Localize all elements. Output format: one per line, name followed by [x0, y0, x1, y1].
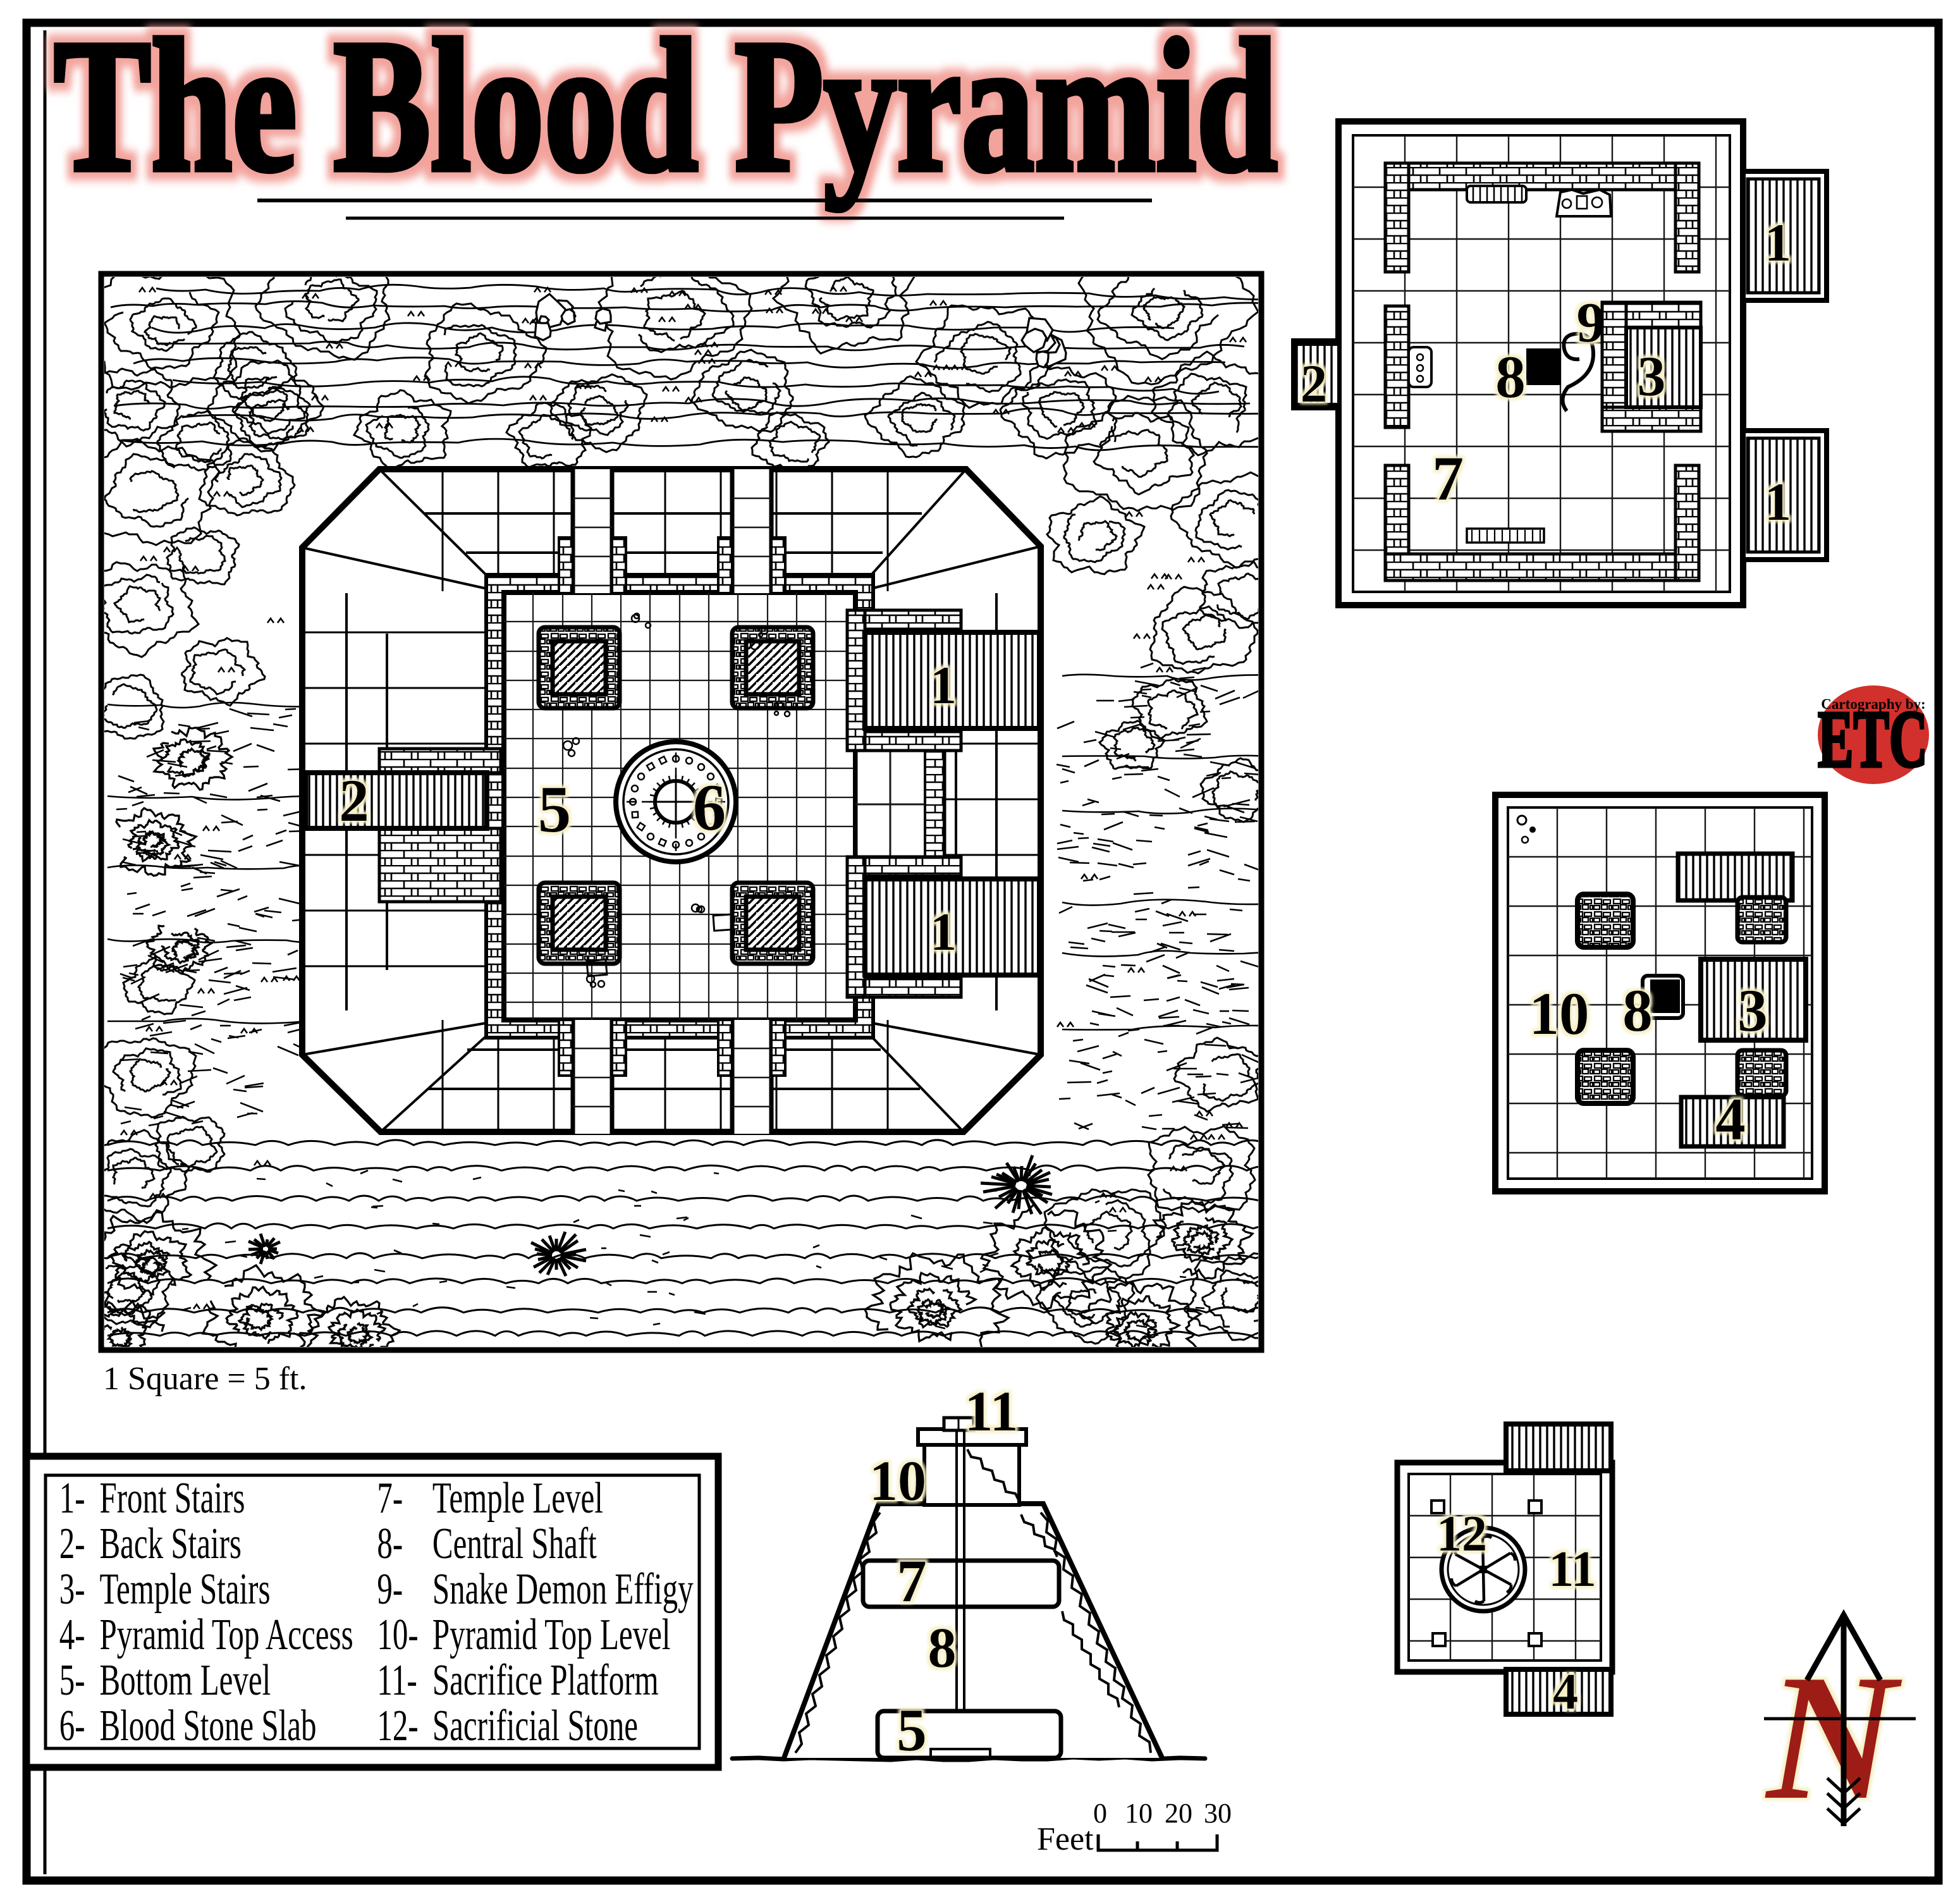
svg-text:1: 1 — [1765, 213, 1792, 273]
svg-text:3-: 3- — [59, 1565, 85, 1614]
svg-text:9-: 9- — [377, 1565, 403, 1614]
svg-text:Bottom Level: Bottom Level — [99, 1656, 271, 1705]
svg-text:Central Shaft: Central Shaft — [432, 1519, 597, 1569]
svg-text:5-: 5- — [59, 1656, 85, 1705]
svg-text:8: 8 — [1495, 343, 1526, 410]
svg-text:7: 7 — [897, 1547, 927, 1614]
svg-text:Temple Stairs: Temple Stairs — [99, 1565, 270, 1614]
svg-text:1: 1 — [1765, 472, 1792, 532]
svg-text:3: 3 — [1638, 345, 1666, 408]
svg-text:5: 5 — [538, 772, 572, 846]
svg-text:N: N — [1764, 1637, 1905, 1837]
svg-text:Back Stairs: Back Stairs — [99, 1519, 242, 1569]
svg-text:ETC: ETC — [1818, 695, 1928, 785]
svg-text:8: 8 — [928, 1617, 957, 1679]
svg-text:1-: 1- — [59, 1474, 85, 1523]
svg-text:Snake Demon Effigy: Snake Demon Effigy — [432, 1565, 694, 1614]
svg-text:0: 0 — [1093, 1798, 1107, 1829]
svg-text:10: 10 — [869, 1450, 926, 1513]
svg-text:Sacrifice Platform: Sacrifice Platform — [432, 1656, 659, 1705]
svg-text:8: 8 — [1622, 977, 1653, 1044]
svg-text:4: 4 — [1715, 1086, 1746, 1153]
svg-text:2-: 2- — [59, 1519, 85, 1569]
svg-text:5: 5 — [897, 1697, 927, 1764]
svg-text:Feet: Feet — [1037, 1821, 1094, 1857]
svg-text:4: 4 — [1553, 1664, 1578, 1720]
svg-text:8-: 8- — [377, 1519, 403, 1569]
svg-text:The Blood Pyramid: The Blood Pyramid — [54, 1, 1277, 211]
svg-text:30: 30 — [1204, 1798, 1232, 1829]
svg-text:7: 7 — [1432, 443, 1464, 513]
svg-text:4-: 4- — [59, 1611, 85, 1660]
svg-text:6-: 6- — [59, 1702, 85, 1751]
svg-text:1 Square = 5 ft.: 1 Square = 5 ft. — [103, 1361, 307, 1397]
svg-text:2: 2 — [339, 767, 369, 834]
svg-text:11: 11 — [1548, 1542, 1596, 1597]
svg-text:Sacrificial Stone: Sacrificial Stone — [432, 1702, 638, 1751]
svg-text:20: 20 — [1165, 1798, 1192, 1829]
svg-text:10: 10 — [1125, 1798, 1153, 1829]
svg-text:10: 10 — [1529, 980, 1589, 1047]
svg-text:10-: 10- — [377, 1611, 418, 1660]
svg-text:Pyramid Top Level: Pyramid Top Level — [432, 1611, 671, 1660]
svg-text:Pyramid Top Access: Pyramid Top Access — [99, 1611, 353, 1660]
svg-text:12: 12 — [1436, 1506, 1487, 1562]
svg-text:7-: 7- — [377, 1474, 403, 1523]
svg-text:6: 6 — [693, 770, 726, 844]
svg-text:Blood Stone Slab: Blood Stone Slab — [99, 1702, 316, 1751]
svg-text:Temple Level: Temple Level — [432, 1474, 603, 1523]
svg-text:12-: 12- — [377, 1702, 418, 1751]
svg-text:11: 11 — [964, 1380, 1018, 1443]
svg-text:2: 2 — [1301, 354, 1328, 414]
svg-text:Front Stairs: Front Stairs — [99, 1474, 245, 1523]
svg-text:1: 1 — [930, 656, 957, 715]
svg-text:1: 1 — [930, 902, 957, 962]
svg-text:3: 3 — [1737, 977, 1768, 1044]
svg-text:11-: 11- — [377, 1656, 417, 1705]
